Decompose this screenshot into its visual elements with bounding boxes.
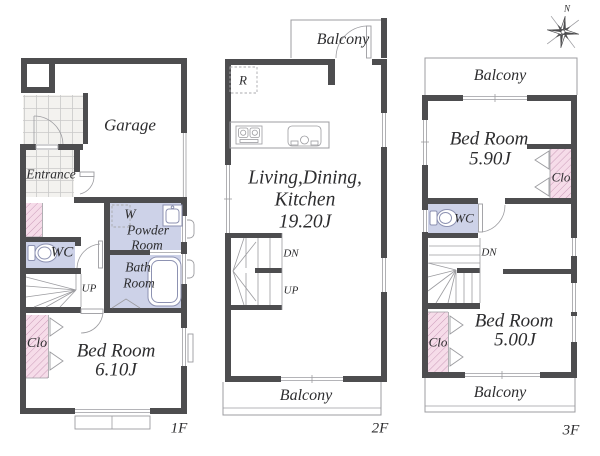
entrance-door-arc [80,172,94,194]
floorplan-image: Garage Entrance WC W Powder Room Bath Ro… [0,0,600,456]
balcony-bottom-label-3f: Balcony [474,385,526,401]
bedroom-door-arc [81,309,103,333]
garage-door [183,133,186,197]
kitchen-sink-icon [288,126,321,146]
bath-room-label2: Room [123,276,155,290]
bedroom2-label-3f: Bed Room [475,312,554,331]
garage-label: Garage [104,117,156,134]
closet-bifold-doors-1f [50,318,63,370]
toilet-icon-3f [430,210,457,227]
front-door [36,145,58,149]
powder-room-label-w: W [124,207,135,221]
wc-label-3f: WC [454,212,474,225]
ldk-label-2: Kitchen [275,190,336,210]
balcony-top-label-3f: Balcony [474,68,526,84]
floor-label-3f: 3F [563,424,580,439]
stairs-1f [26,274,81,307]
powder-room-label2: Room [131,238,163,252]
dn-label-3f: DN [481,248,496,259]
powder-room-label: Powder [127,223,169,237]
windows-2f [224,113,385,383]
refrigerator-label: R [239,74,247,87]
stove-icon [236,126,262,144]
bedroom1-door-arc [479,204,506,232]
balcony-top-label-2f: Balcony [317,32,369,48]
balcony-bottom-label-2f: Balcony [280,388,332,404]
floor-label-2f: 2F [372,422,389,437]
bedroom2-size-3f: 5.00J [494,331,536,350]
entrance-label: Entrance [26,167,76,181]
up-label-2f: UP [284,286,299,297]
ldk-size-label: 19.20J [279,212,332,232]
bedroom1-label-3f: Bed Room [450,130,529,149]
closet2-label-3f: Clo [429,336,448,349]
kitchen-counter [230,122,329,148]
compass-north-label: N [564,5,570,14]
bath-room-label: Bath [125,260,151,274]
closet1-label-3f: Clo [552,171,571,184]
up-label-1f: UP [82,284,97,295]
wc-label-1f: WC [51,246,74,261]
bedroom-size-1f: 6.10J [95,361,137,380]
shoe-closet-hatch [26,203,42,237]
bedroom-label-1f: Bed Room [77,342,156,361]
floor-label-1f: 1F [171,422,188,437]
dn-label-2f: DN [283,249,298,260]
closet-label-1f: Clo [27,337,47,351]
ldk-label-1: Living,Dining, [248,168,362,188]
compass-icon [545,14,581,50]
bedroom1-size-3f: 5.90J [469,150,511,169]
